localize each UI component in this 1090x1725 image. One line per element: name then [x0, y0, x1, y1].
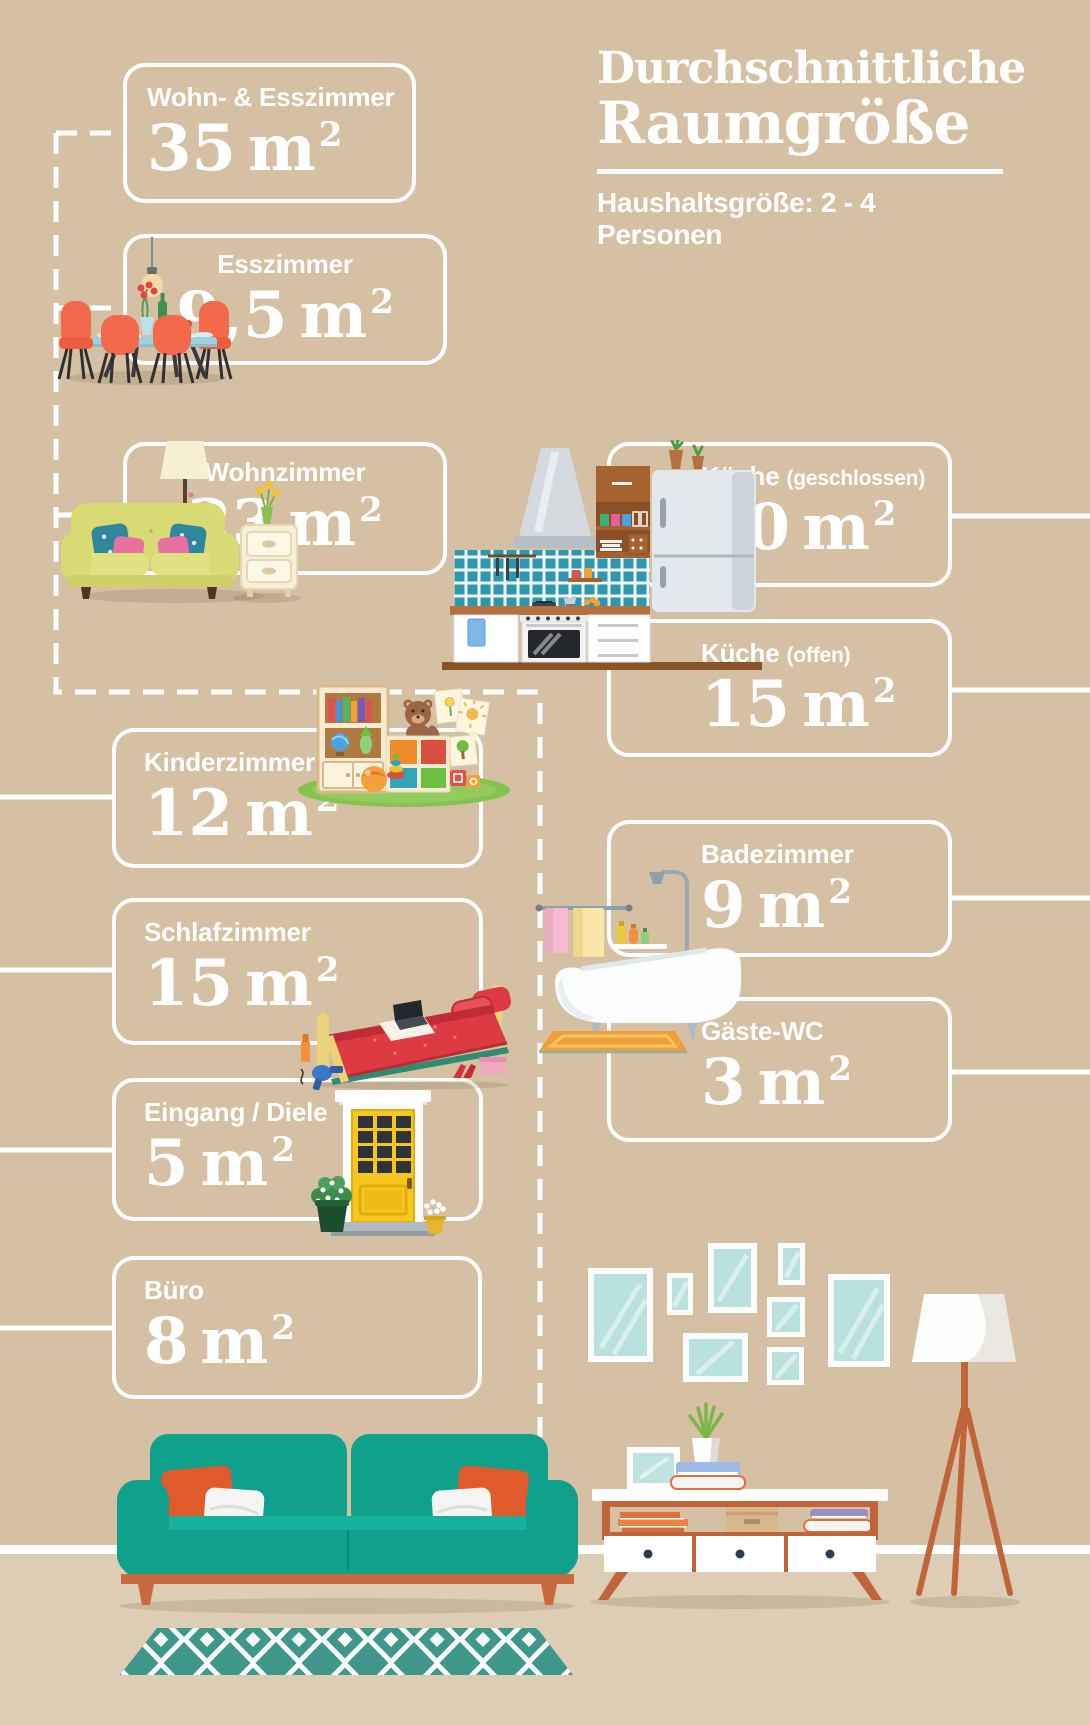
title-block: Durchschnittliche Raumgröße Haushaltsgrö…: [597, 46, 1003, 251]
bed-icon: [295, 985, 515, 1090]
sofa-icon: [117, 1434, 578, 1605]
toy-ball-icon: [361, 766, 387, 792]
shower-icon: [649, 872, 687, 955]
value-number: 15: [701, 667, 790, 742]
bath-mat-icon: [539, 1031, 687, 1052]
value-unit: m: [802, 667, 870, 742]
bathroom-icon: [535, 865, 770, 1055]
plant-icon: [669, 440, 704, 469]
title-divider: [597, 169, 1003, 174]
drawing-icon: [456, 698, 490, 735]
value-sup: 2: [316, 950, 340, 990]
value-number: 3: [701, 1045, 746, 1120]
value-number: 35: [147, 111, 236, 186]
value-sup: 2: [828, 872, 852, 912]
dining-set-icon: [55, 225, 235, 390]
page-title-line2: Raumgröße: [597, 94, 1003, 152]
value-sup: 2: [828, 1049, 852, 1089]
picture-frames: [588, 1243, 890, 1385]
wohnzimmer-sofa-icon: [55, 435, 300, 605]
front-door-icon: [305, 1090, 455, 1250]
sofa-icon: [61, 503, 239, 599]
value-unit: m: [299, 278, 367, 353]
room-value: 3m2: [701, 1051, 948, 1115]
value-unit: m: [201, 1126, 269, 1201]
kitchen-icon: [440, 440, 765, 670]
room-label-note: (offen): [787, 644, 851, 667]
rug-icon: [120, 1628, 573, 1675]
room-box-wohn-esszimmer: Wohn- & Esszimmer 35m2: [123, 63, 416, 203]
infographic-canvas: Durchschnittliche Raumgröße Haushaltsgrö…: [0, 0, 1090, 1725]
value-sup: 2: [370, 282, 394, 322]
value-number: 5: [144, 1126, 189, 1201]
value-unit: m: [248, 111, 316, 186]
value-number: 12: [144, 776, 233, 851]
value-sup: 2: [873, 671, 897, 711]
value-sup: 2: [873, 494, 897, 534]
page-title-line1: Durchschnittliche: [597, 46, 1003, 92]
value-unit: m: [802, 490, 870, 565]
value-sup: 2: [359, 490, 383, 530]
room-label: Wohn- & Esszimmer: [147, 83, 412, 112]
letter-blocks-icon: [450, 770, 480, 788]
value-sup: 2: [319, 115, 343, 155]
room-label-note: (geschlossen): [787, 467, 926, 490]
sideboard-icon: [592, 1404, 888, 1600]
kids-room-toys-icon: [290, 680, 515, 810]
nightstand-icon: [241, 481, 297, 597]
bathtub-icon: [555, 948, 741, 1041]
room-value: 15m2: [701, 673, 948, 737]
room-value: 35m2: [147, 117, 412, 181]
value-number: 15: [144, 946, 233, 1021]
page-subtitle: Haushaltsgröße: 2 - 4 Personen: [597, 187, 1003, 251]
value-unit: m: [758, 1045, 826, 1120]
bath-shelf-icon: [611, 921, 667, 949]
living-room-scene: [0, 1240, 1090, 1725]
value-sup: 2: [271, 1130, 295, 1170]
room-label: Schlafzimmer: [144, 918, 479, 947]
fridge-icon: [652, 470, 756, 612]
dining-chair-icon: [59, 301, 93, 379]
drawing-icon: [449, 735, 477, 766]
